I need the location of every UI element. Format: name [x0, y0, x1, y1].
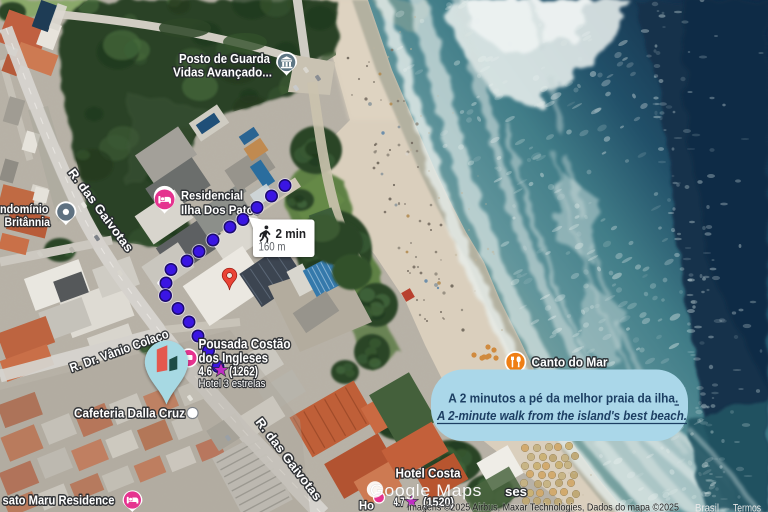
- svg-text:Posto de Guarda: Posto de Guarda: [179, 52, 271, 66]
- svg-text:ses: ses: [505, 484, 527, 499]
- svg-text:4.6: 4.6: [199, 365, 213, 379]
- svg-text:ndomínio: ndomínio: [0, 202, 49, 216]
- svg-text:Google Maps: Google Maps: [370, 482, 482, 500]
- svg-text:Hotel 3 estrelas: Hotel 3 estrelas: [199, 378, 266, 390]
- svg-text:Britânnia: Britânnia: [5, 215, 51, 229]
- svg-text:sato Maru Residence: sato Maru Residence: [3, 493, 115, 508]
- svg-text:Imagens ©2025 Airbus, Maxar Te: Imagens ©2025 Airbus, Maxar Technologies…: [407, 502, 679, 512]
- svg-text:Hotel Costa: Hotel Costa: [396, 467, 462, 481]
- svg-text:Brasil: Brasil: [695, 503, 719, 512]
- svg-text:Vidas Avançado...: Vidas Avançado...: [173, 66, 272, 80]
- svg-text:A 2-minute walk from the islan: A 2-minute walk from the island's best b…: [436, 408, 687, 423]
- svg-text:160 m: 160 m: [259, 242, 286, 254]
- svg-text:Cafeteria Dalla Cruz: Cafeteria Dalla Cruz: [74, 406, 185, 421]
- svg-text:A 2 minutos a pé da melhor pra: A 2 minutos a pé da melhor praia da ilha…: [448, 391, 678, 406]
- svg-text:(1262): (1262): [229, 365, 258, 379]
- svg-text:2 min: 2 min: [276, 226, 307, 241]
- svg-text:dos Ingleses: dos Ingleses: [199, 350, 269, 366]
- svg-text:Termos: Termos: [733, 503, 761, 512]
- svg-text:Canto do Mar: Canto do Mar: [532, 355, 608, 370]
- svg-text:Residencial: Residencial: [181, 189, 243, 203]
- svg-text:Ho: Ho: [359, 501, 374, 512]
